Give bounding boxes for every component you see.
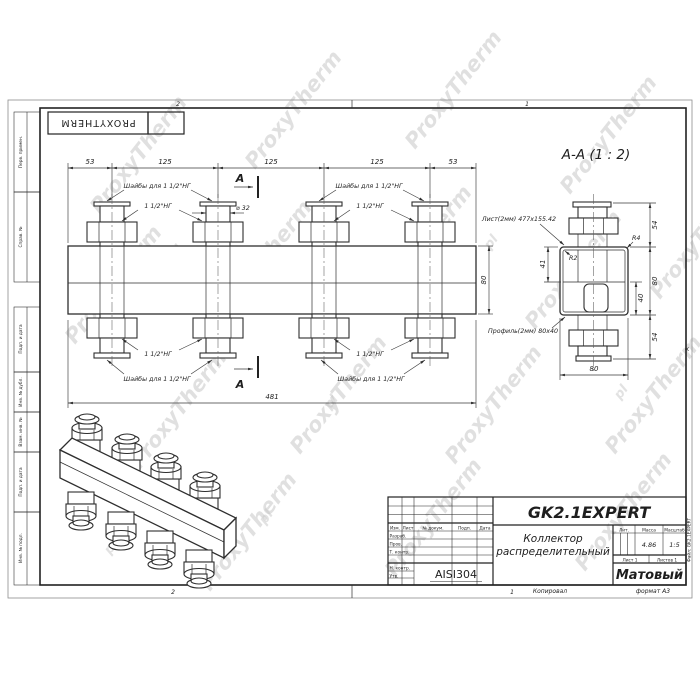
zone-number: 1: [510, 589, 514, 596]
row-nkontr: Н. контр.: [390, 566, 411, 572]
dim-dia-32: ⌀ 32: [236, 205, 250, 212]
format-label: формат А3: [636, 588, 670, 595]
section-letter-top: A: [235, 172, 245, 185]
sheet-number: Лист 1: [623, 558, 638, 564]
margin-label: Инв. № подл.: [18, 533, 24, 563]
watermark: ProxyTherm: [440, 341, 547, 468]
mass-label: Масса: [642, 528, 656, 534]
watermark: ProxyTherm: [240, 46, 347, 173]
watermark: ProxyTherm: [555, 71, 662, 198]
margin-boxes: Перв. примен. Справ. № Подп. и дата Инв.…: [14, 112, 40, 585]
dim-80-bottom: 80: [590, 365, 599, 373]
col-date: Дата: [479, 526, 490, 532]
dim-53-left: 53: [86, 158, 95, 166]
label-thread: 1 1/2"НГ: [144, 203, 172, 210]
section-mark-bottom: A: [234, 356, 258, 391]
margin-label: Подп. и дата: [18, 467, 24, 497]
watermark-suffix: pl: [481, 232, 502, 253]
sheets-total: Листов 1: [657, 558, 677, 564]
radius-r4: R4: [632, 235, 640, 242]
dim-53-right: 53: [449, 158, 458, 166]
lit-label: Лит.: [619, 528, 629, 534]
dim-40: 40: [637, 293, 645, 302]
dim-80: 80: [480, 275, 488, 284]
margin-label: Справ. №: [18, 226, 24, 247]
label-washers: Шайбы для 1 1/2"НГ: [338, 375, 405, 383]
label-washers: Шайбы для 1 1/2"НГ: [336, 182, 403, 190]
part-name-line2: распределительный: [495, 546, 610, 558]
radius-r2: R2: [569, 255, 577, 262]
iso-fitting-bottom: [106, 512, 136, 550]
section-letter-bottom: A: [235, 378, 245, 391]
zone-number: 1: [525, 101, 529, 108]
scale-value: 1:5: [669, 541, 679, 549]
drawing-sheet: ProxyTherm ProxyTherm ProxyTherm ProxyTh…: [0, 0, 700, 700]
mass-value: 4.86: [642, 541, 656, 549]
brand-stamp-text: PROXYTHERM: [60, 117, 135, 128]
part-name-line1: Коллектор: [523, 533, 583, 545]
col-izm: Изм.: [390, 526, 400, 532]
row-prov: Пров.: [390, 542, 403, 548]
margin-label: Подп. и дата: [18, 324, 24, 354]
watermark: ProxyTherm: [85, 91, 192, 218]
watermark-suffix: pl: [611, 382, 632, 403]
section-mark-top: A: [234, 172, 258, 198]
margin-label: Инв. № дубл.: [18, 377, 24, 406]
material-value: AISI304: [435, 568, 477, 581]
col-sign: Подп.: [458, 526, 471, 532]
dim-body-height: 80: [478, 246, 493, 314]
margin-label: Взам. инв. №: [18, 417, 24, 447]
iso-fitting-bottom: [66, 492, 96, 530]
dim-125-2: 125: [264, 158, 278, 166]
dim-125-3: 125: [370, 158, 384, 166]
margin-label: Перв. примен.: [18, 136, 24, 168]
label-sheet-metal: Лист(2мм) 477x155.42: [481, 216, 556, 223]
dim-54-top: 54: [651, 221, 659, 230]
dim-481: 481: [265, 393, 278, 401]
row-utv: Утв.: [390, 574, 399, 580]
watermark: ProxyTherm: [380, 454, 487, 581]
label-washers: Шайбы для 1 1/2"НГ: [124, 375, 191, 383]
dim-41: 41: [539, 260, 547, 269]
iso-fitting-bottom: [184, 550, 214, 588]
part-code: GK2.1EXPERT: [528, 503, 651, 522]
row-tkontr: Т. контр.: [389, 550, 410, 556]
dim-54-bottom: 54: [651, 333, 659, 342]
row-razrab: Разраб.: [390, 534, 407, 540]
zone-number: 2: [171, 589, 175, 596]
zone-letter: А: [685, 347, 691, 351]
finish-value: Матовый: [616, 568, 683, 583]
zone-number: 2: [176, 101, 180, 108]
col-doc: № докум.: [422, 526, 443, 532]
iso-fitting-bottom: [145, 531, 175, 569]
cad-drawing: ProxyTherm ProxyTherm ProxyTherm ProxyTh…: [0, 0, 700, 700]
col-list: Лист: [403, 526, 414, 532]
section-title: A-A (1 : 2): [561, 147, 630, 163]
watermark: ProxyTherm: [400, 26, 507, 153]
copied-label: Копировал: [533, 588, 567, 595]
label-profile: Профиль(2мм) 80x40: [488, 328, 558, 335]
dim-125-1: 125: [158, 158, 172, 166]
front-view: 53 125 125 125 53 481 80 ⌀ 32: [68, 158, 493, 408]
dim-80-right: 80: [651, 276, 659, 285]
label-thread: 1 1/2"НГ: [356, 203, 384, 210]
scale-label: Масштаб: [664, 528, 685, 534]
label-thread: 1 1/2"НГ: [144, 351, 172, 358]
label-thread: 1 1/2"НГ: [356, 351, 384, 358]
label-washers: Шайбы для 1 1/2"НГ: [124, 182, 191, 190]
